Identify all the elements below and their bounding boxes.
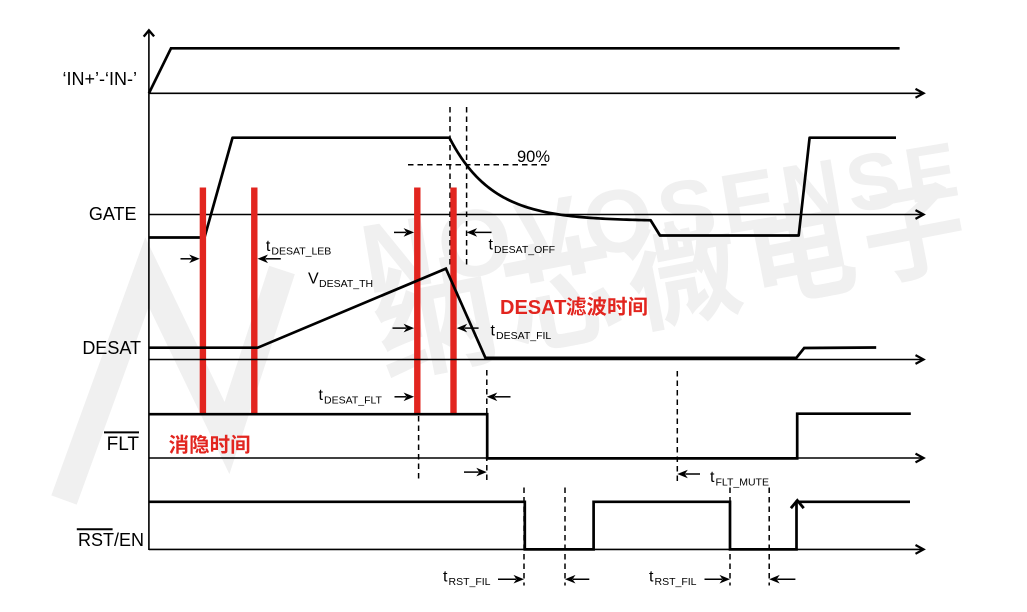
svg-text:DESAT_OFF: DESAT_OFF: [494, 244, 555, 256]
svg-text:RST/EN: RST/EN: [78, 530, 144, 550]
svg-text:DESAT_LEB: DESAT_LEB: [271, 245, 331, 257]
svg-text:t: t: [710, 469, 715, 486]
svg-text:90%: 90%: [517, 148, 550, 166]
svg-text:t: t: [491, 323, 496, 340]
svg-text:t: t: [443, 569, 448, 586]
svg-text:GATE: GATE: [89, 204, 137, 224]
svg-text:t: t: [266, 238, 271, 255]
svg-text:DESAT: DESAT: [82, 338, 141, 358]
svg-text:‘IN+’-‘IN-’: ‘IN+’-‘IN-’: [63, 69, 138, 89]
svg-text:t: t: [319, 387, 324, 404]
svg-text:RST_FIL: RST_FIL: [449, 576, 491, 588]
svg-text:DESAT_FLT: DESAT_FLT: [324, 395, 383, 407]
svg-text:RST_FIL: RST_FIL: [655, 576, 697, 588]
svg-text:FLT_MUTE: FLT_MUTE: [716, 477, 769, 489]
svg-text:DESAT_FIL: DESAT_FIL: [496, 330, 551, 342]
svg-text:DESAT_TH: DESAT_TH: [319, 278, 373, 290]
svg-text:FLT: FLT: [107, 434, 140, 455]
svg-text:t: t: [649, 569, 654, 586]
svg-text:V: V: [308, 271, 319, 288]
svg-text:t: t: [489, 237, 494, 254]
svg-text:DESAT: DESAT: [500, 297, 566, 319]
